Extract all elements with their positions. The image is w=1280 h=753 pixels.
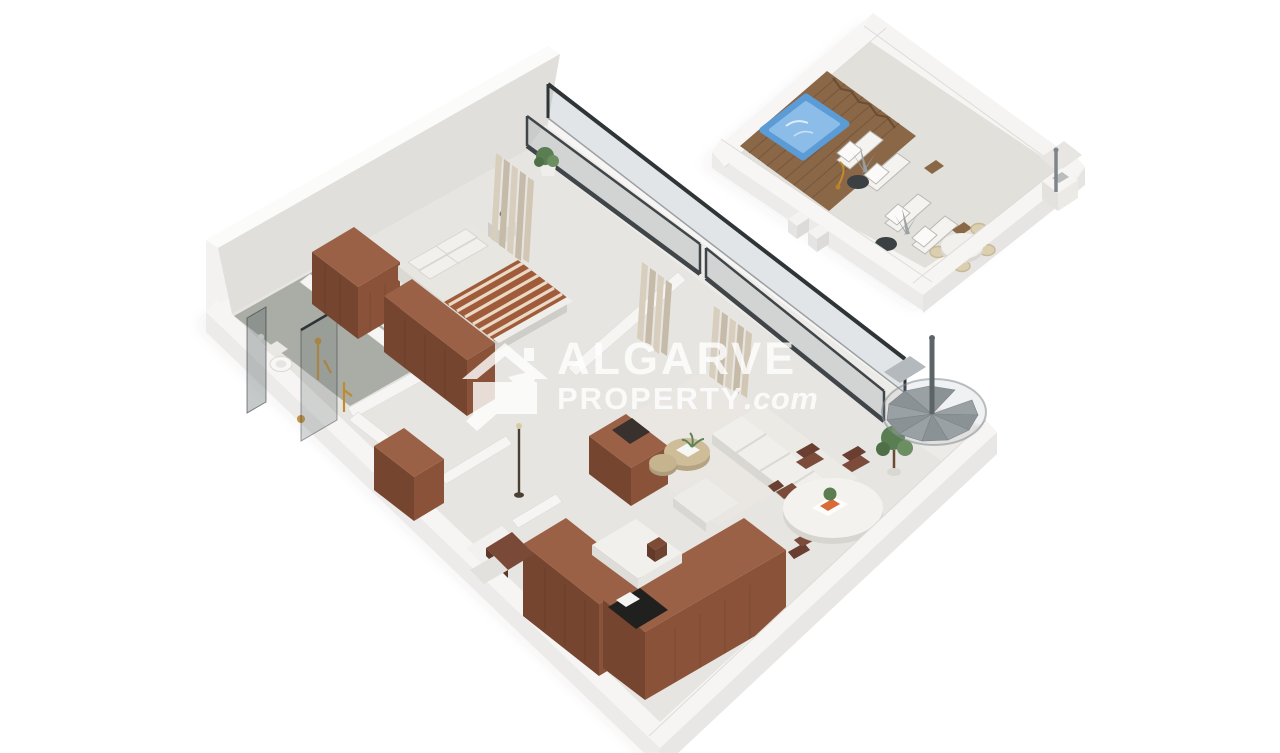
table-plant bbox=[824, 488, 837, 501]
shower-glass-left bbox=[247, 307, 266, 413]
floor-plan-screenshot: ALGARVE PROPERTY .com bbox=[0, 0, 1280, 753]
watermark-suffix: .com bbox=[744, 381, 818, 416]
watermark-line2: PROPERTY bbox=[557, 381, 744, 416]
watermark-line1: ALGARVE bbox=[557, 333, 797, 384]
side-table bbox=[847, 175, 869, 189]
isometric-floor-plan-scene: ALGARVE PROPERTY .com bbox=[0, 0, 1280, 753]
shower-glass-right bbox=[301, 309, 337, 441]
